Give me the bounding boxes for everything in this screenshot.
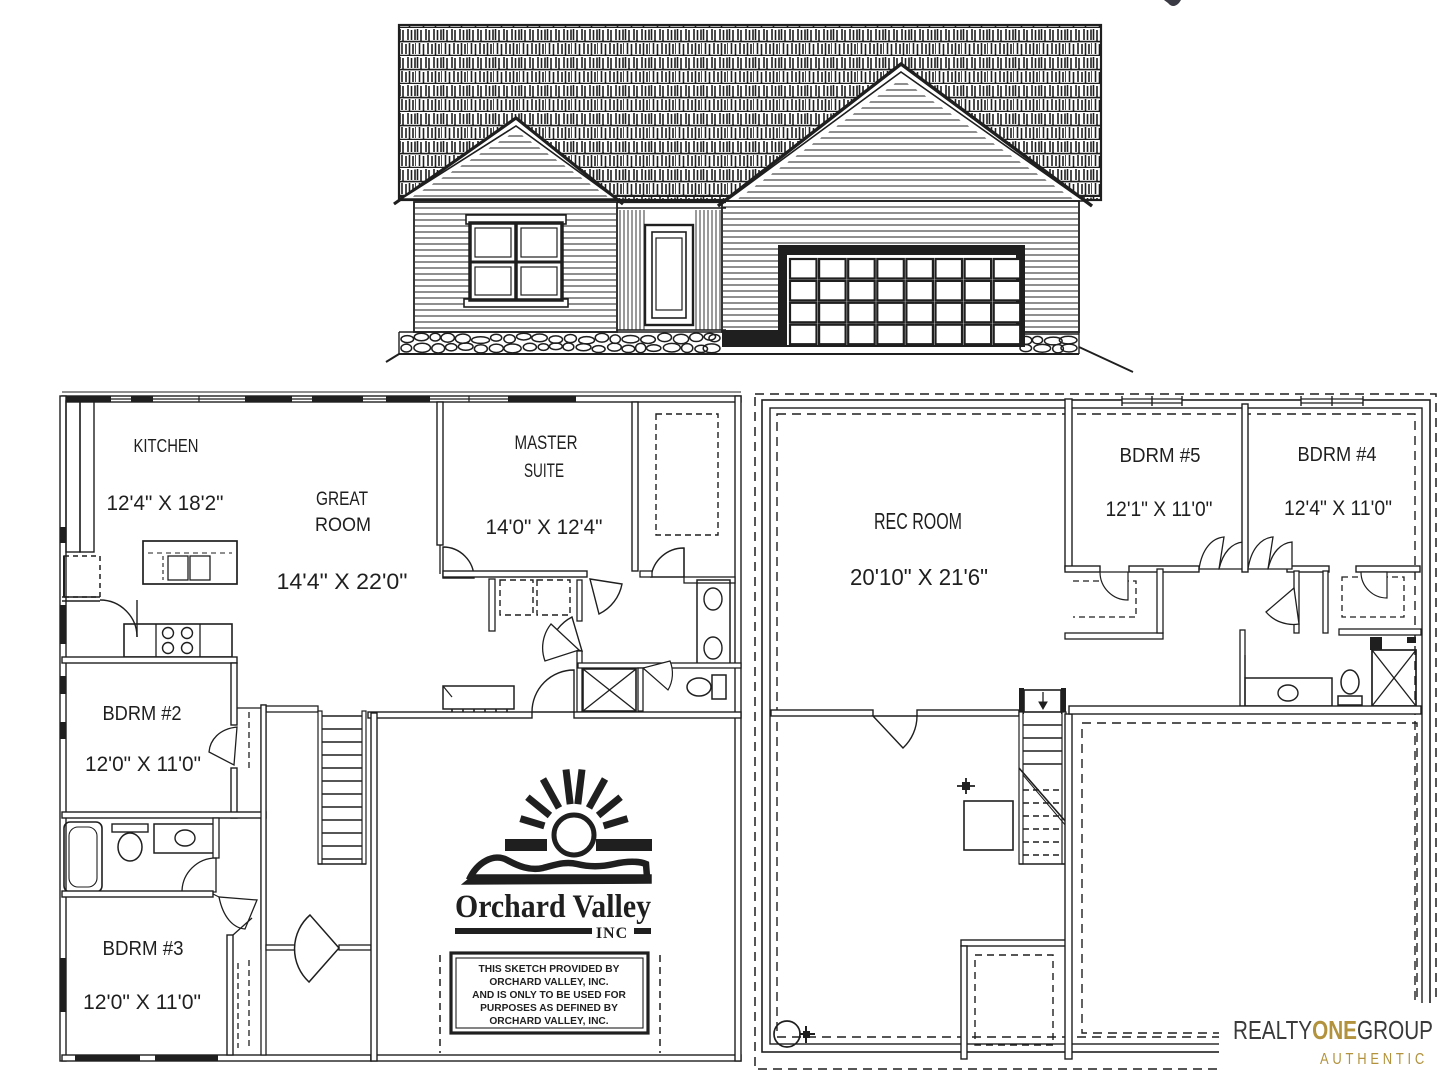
svg-text:BDRM #5: BDRM #5 [1120, 445, 1201, 467]
svg-text:REALTYONEGROUP: REALTYONEGROUP [1233, 1015, 1433, 1045]
svg-text:12'0" X 11'0": 12'0" X 11'0" [85, 753, 201, 776]
svg-text:BDRM #2: BDRM #2 [103, 703, 182, 725]
svg-text:INC: INC [596, 925, 628, 942]
svg-text:PURPOSES AS DEFINED BY: PURPOSES AS DEFINED BY [480, 1003, 618, 1014]
svg-text:THIS SKETCH PROVIDED BY: THIS SKETCH PROVIDED BY [479, 964, 620, 975]
svg-text:12'4" X 18'2": 12'4" X 18'2" [107, 492, 224, 515]
svg-text:GREAT: GREAT [316, 489, 368, 510]
svg-text:12'0" X 11'0": 12'0" X 11'0" [83, 991, 201, 1014]
svg-text:ORCHARD VALLEY, INC.: ORCHARD VALLEY, INC. [489, 1016, 608, 1027]
svg-text:REC ROOM: REC ROOM [874, 508, 962, 534]
svg-text:ROOM: ROOM [315, 515, 371, 536]
svg-text:AND IS ONLY TO BE USED FOR: AND IS ONLY TO BE USED FOR [472, 990, 626, 1001]
svg-text:KITCHEN: KITCHEN [134, 436, 199, 456]
svg-text:MASTER: MASTER [515, 433, 578, 454]
svg-text:14'4" X 22'0": 14'4" X 22'0" [277, 569, 408, 594]
svg-text:BDRM #4: BDRM #4 [1298, 444, 1377, 466]
svg-text:20'10" X 21'6": 20'10" X 21'6" [850, 564, 988, 590]
svg-text:SUITE: SUITE [524, 461, 564, 482]
svg-text:14'0" X 12'4": 14'0" X 12'4" [486, 516, 603, 539]
svg-text:ORCHARD VALLEY, INC.: ORCHARD VALLEY, INC. [489, 977, 608, 988]
svg-text:12'4" X 11'0": 12'4" X 11'0" [1284, 497, 1392, 520]
svg-text:Orchard Valley: Orchard Valley [455, 889, 651, 925]
svg-text:AUTHENTIC: AUTHENTIC [1320, 1051, 1428, 1068]
svg-text:12'1" X 11'0": 12'1" X 11'0" [1106, 498, 1213, 521]
svg-text:BDRM #3: BDRM #3 [103, 938, 184, 960]
